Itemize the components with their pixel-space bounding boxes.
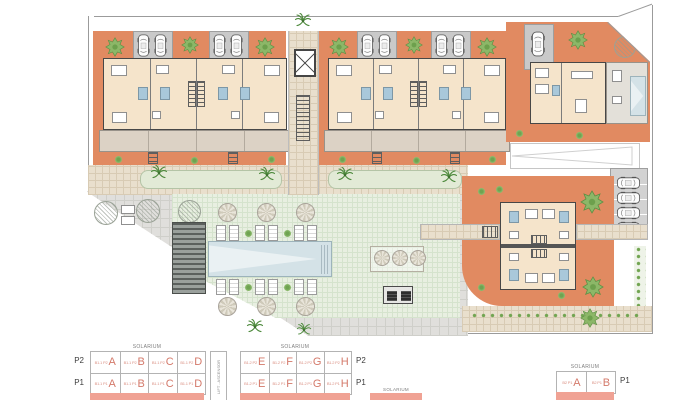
- legend-cell: B1.2 P2G: [296, 352, 324, 373]
- floor-label-p2: P2: [58, 356, 84, 365]
- legend-cell: B1.2 P1H: [324, 373, 352, 395]
- legend-cell: B1.1 P1B: [120, 373, 149, 395]
- car-icon: [154, 33, 167, 58]
- sunbed-icon: [216, 279, 226, 295]
- parasol-icon: [257, 297, 276, 316]
- bush-icon: [284, 284, 291, 291]
- villa-house: [530, 62, 606, 124]
- car-icon: [230, 33, 243, 58]
- boundary-top: [94, 16, 618, 17]
- sunbed-icon: [229, 225, 239, 241]
- legend-cell: B1.1 P1C: [148, 373, 177, 395]
- south-bushes: [470, 312, 640, 320]
- legend-solarium-bar: [240, 393, 350, 400]
- parking-area: [610, 168, 648, 230]
- tree-icon: [105, 37, 125, 57]
- legend-solarium-bar: [556, 392, 614, 400]
- villa-plot: [506, 22, 650, 142]
- house-b12: [328, 58, 506, 130]
- terrace: [99, 130, 291, 152]
- car-icon: [452, 33, 465, 58]
- bush-icon: [478, 188, 485, 195]
- tree-icon: [568, 30, 588, 50]
- parasol-icon: [296, 297, 315, 316]
- palm-icon: [440, 168, 458, 186]
- palm-icon: [296, 322, 312, 338]
- lift-label: LIFT - ASCENSOR: [216, 360, 221, 394]
- palm-icon: [258, 166, 276, 184]
- service-box: [121, 216, 135, 225]
- parasol-icon: [218, 203, 237, 222]
- tree-icon: [178, 200, 201, 223]
- solarium-label: SOLARIUM: [240, 344, 350, 350]
- lift-box: LIFT - ASCENSOR: [210, 351, 227, 400]
- legend-table-b12: B1.2 P2E B1.2 P2F B1.2 P2G B1.2 P2H B1.2…: [240, 351, 352, 395]
- access-ramp: [510, 143, 640, 169]
- legend-cell: B1.1 P2A: [91, 352, 120, 373]
- parasol-icon: [374, 250, 390, 266]
- bush-icon: [245, 230, 252, 237]
- palm-icon: [336, 166, 354, 184]
- sunbed-icon: [268, 225, 278, 241]
- villa-pool: [630, 76, 646, 116]
- legend-table-b2: B2 P1A B2 P1B: [556, 371, 616, 394]
- sunbed-icon: [216, 225, 226, 241]
- walkway-parking: [576, 224, 648, 240]
- solarium-label: SOLARIUM: [368, 387, 424, 392]
- car-icon: [378, 33, 391, 58]
- bush-icon: [245, 284, 252, 291]
- service-box: [121, 205, 135, 214]
- pool-steps: [321, 245, 330, 274]
- block-b12: [319, 31, 506, 165]
- sunbed-icon: [294, 225, 304, 241]
- car-icon: [361, 33, 374, 58]
- sunbed-icon: [229, 279, 239, 295]
- swimming-pool: [208, 241, 332, 277]
- tree-icon: [582, 276, 604, 298]
- bush-icon: [516, 130, 523, 137]
- floor-label-p1: P1: [356, 378, 366, 387]
- tree-icon: [405, 36, 423, 54]
- legend-table-b11: B1.1 P2A B1.1 P2B B1.1 P2C B1.1 P2D B1.1…: [90, 351, 206, 395]
- sunbed-icon: [255, 279, 265, 295]
- bush-icon: [191, 157, 198, 164]
- tree-icon: [477, 37, 497, 57]
- parasol-icon: [257, 203, 276, 222]
- legend-solarium-bar: [370, 393, 422, 400]
- parasol-icon: [218, 297, 237, 316]
- sunbed-icon: [268, 279, 278, 295]
- bush-icon: [268, 156, 275, 163]
- legend-cell: B1.2 P2F: [269, 352, 297, 373]
- legend-cell: B1.1 P2C: [148, 352, 177, 373]
- house-b11: [103, 58, 287, 130]
- legend-cell: B1.1 P2D: [177, 352, 206, 373]
- bush-icon: [413, 157, 420, 164]
- palm-icon: [294, 12, 312, 30]
- floor-label-p1: P1: [620, 376, 630, 385]
- legend-solarium-bar: [90, 393, 204, 400]
- bush-icon: [576, 132, 583, 139]
- tree-icon: [136, 199, 160, 223]
- legend-cell: B2 P1B: [586, 372, 615, 393]
- legend-cell: B1.2 P1F: [269, 373, 297, 395]
- parasol-icon: [296, 203, 315, 222]
- car-icon: [616, 192, 642, 205]
- bush-icon: [478, 284, 485, 291]
- legend-cell: B1.2 P1E: [241, 373, 269, 395]
- tree-icon: [329, 37, 349, 57]
- palm-icon: [150, 164, 168, 182]
- elevator: [294, 49, 316, 77]
- car-icon: [137, 33, 150, 58]
- sunbed-icon: [307, 225, 317, 241]
- solarium-label: SOLARIUM: [556, 364, 614, 370]
- car-icon: [616, 177, 642, 190]
- legend-cell: B1.1 P2B: [120, 352, 149, 373]
- car-icon: [213, 33, 226, 58]
- floor-label-p1: P1: [58, 378, 84, 387]
- green-strip: [634, 246, 646, 306]
- block-b11: [93, 31, 286, 165]
- legend-cell: B1.1 P1A: [91, 373, 120, 395]
- tree-icon: [255, 37, 275, 57]
- site-plan: P2 P1 SOLARIUM B1.1 P2A B1.1 P2B B1.1 P2…: [0, 0, 700, 400]
- legend-cell: B1.2 P2E: [241, 352, 269, 373]
- palm-icon: [246, 318, 264, 336]
- bbq-station: [383, 286, 413, 304]
- bush-icon: [558, 292, 565, 299]
- boundary-top-right: [618, 4, 652, 17]
- tree-icon: [94, 201, 118, 225]
- bush-icon: [115, 156, 122, 163]
- bush-icon: [489, 156, 496, 163]
- boundary-right: [652, 5, 653, 334]
- sunbed-icon: [294, 279, 304, 295]
- car-icon: [435, 33, 448, 58]
- bush-icon: [339, 156, 346, 163]
- tree-icon: [580, 190, 604, 214]
- legend-cell: B1.2 P1G: [296, 373, 324, 395]
- sunbed-icon: [307, 279, 317, 295]
- parasol-icon: [410, 250, 426, 266]
- stairs-icon: [482, 226, 498, 238]
- floor-label-p2: P2: [356, 356, 366, 365]
- terrace: [324, 130, 510, 152]
- solarium-label: SOLARIUM: [90, 344, 204, 350]
- house-b2: [500, 202, 576, 290]
- car-icon: [616, 207, 642, 220]
- stairs-icon: [296, 95, 310, 141]
- legend-cell: B2 P1A: [557, 372, 586, 393]
- tree-icon: [181, 36, 199, 54]
- bush-icon: [496, 186, 503, 193]
- car-icon: [531, 30, 545, 58]
- parasol-icon: [392, 250, 408, 266]
- legend-cell: B1.1 P1D: [177, 373, 206, 395]
- bush-icon: [284, 230, 291, 237]
- pergola: [172, 222, 206, 294]
- legend-cell: B1.2 P2H: [324, 352, 352, 373]
- tree-icon: [580, 308, 600, 328]
- sunbed-icon: [255, 225, 265, 241]
